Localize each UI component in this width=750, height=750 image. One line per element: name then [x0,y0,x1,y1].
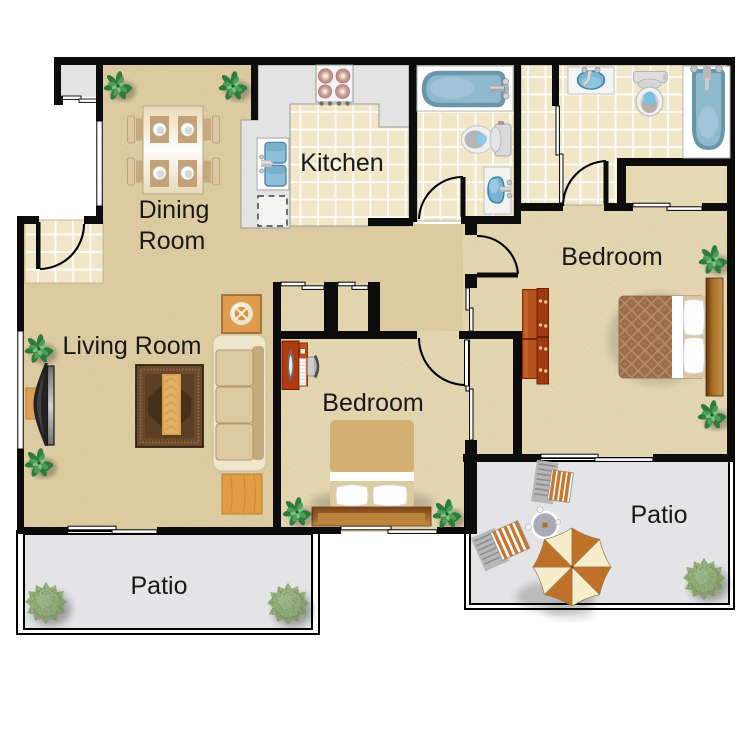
svg-text:Room: Room [139,227,206,255]
svg-text:Patio: Patio [631,501,688,529]
svg-text:Kitchen: Kitchen [300,149,383,177]
svg-text:Patio: Patio [131,572,188,600]
svg-text:Living Room: Living Room [63,332,202,360]
svg-text:Bedroom: Bedroom [322,389,423,417]
svg-text:Dining: Dining [139,196,210,224]
svg-text:Bedroom: Bedroom [561,243,662,271]
